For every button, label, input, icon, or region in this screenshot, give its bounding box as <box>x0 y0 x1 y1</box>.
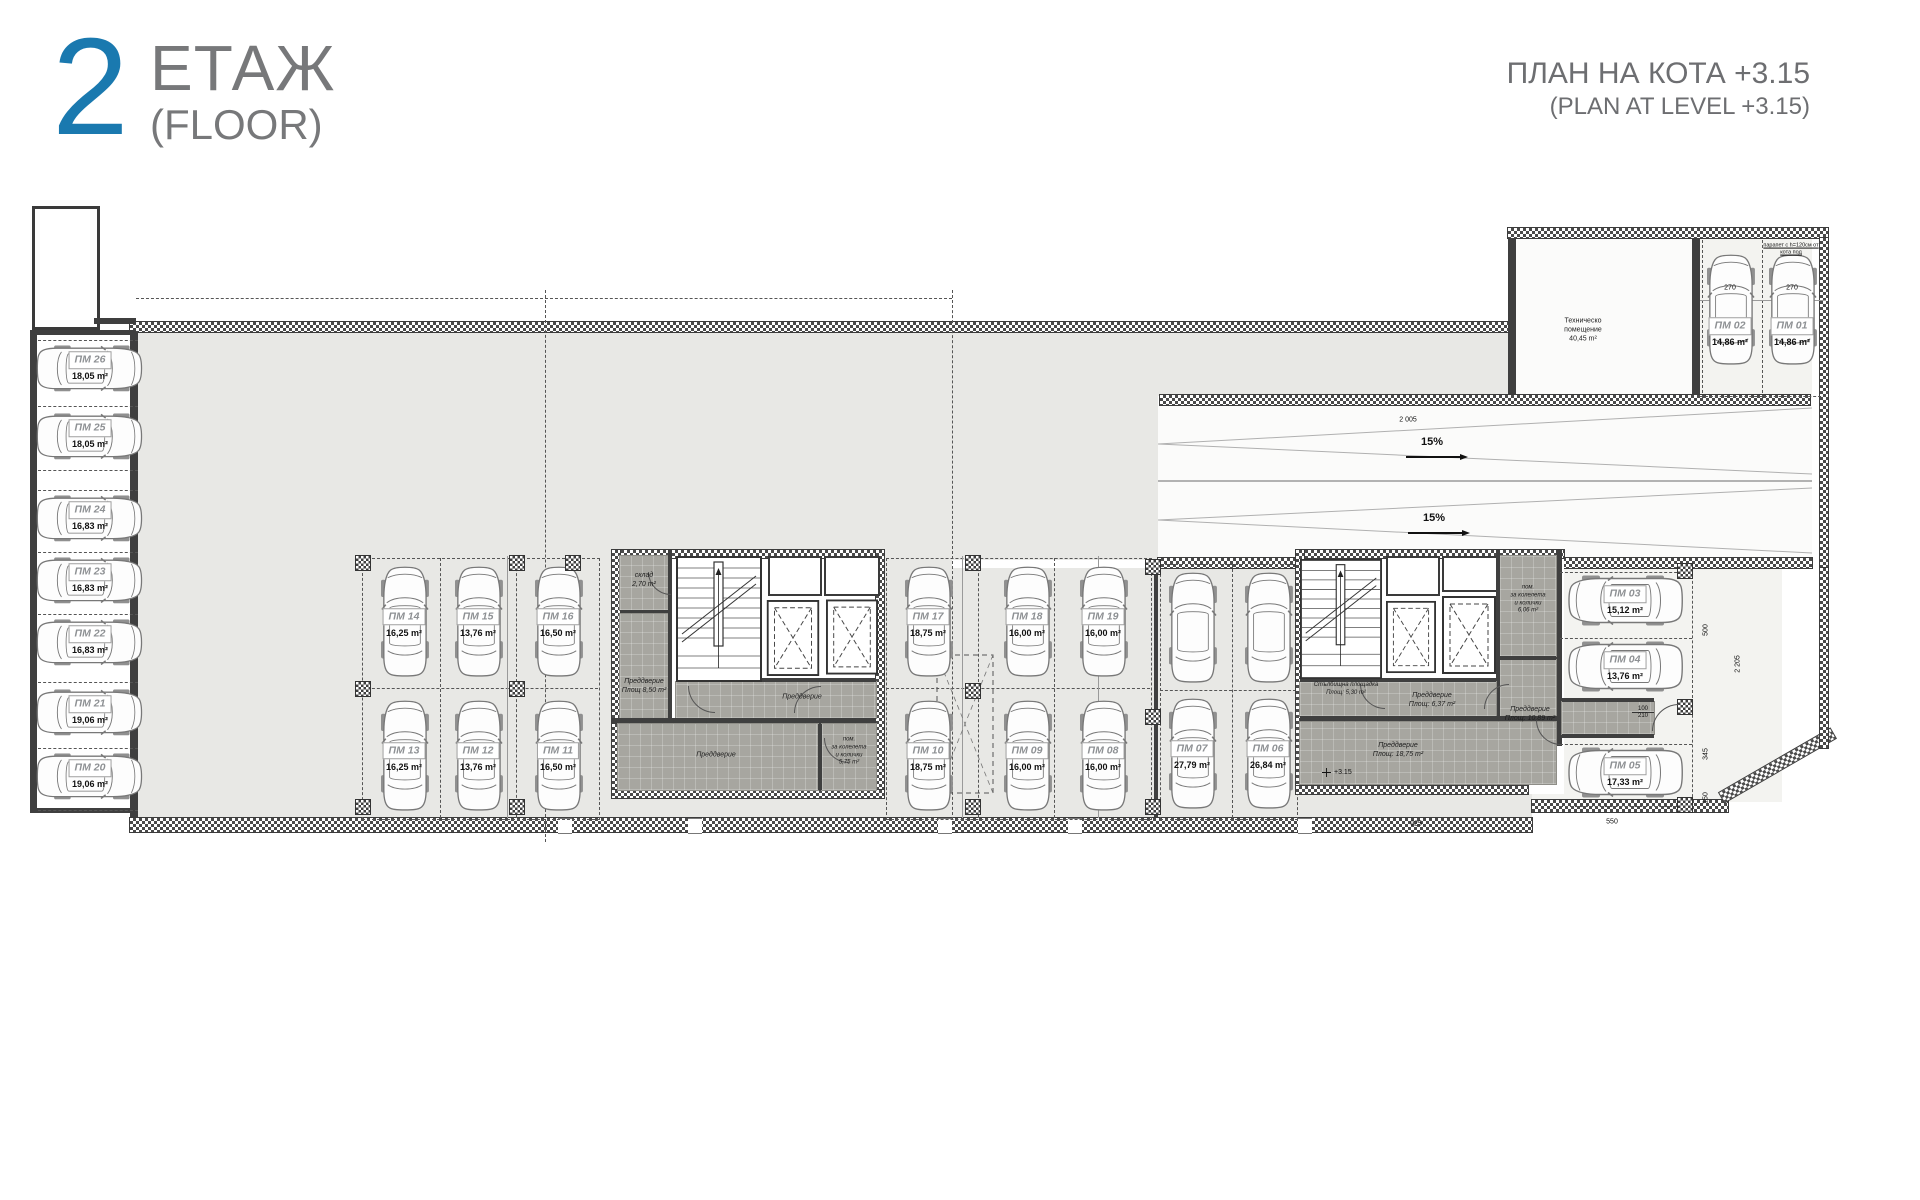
parking-spot: ПМ 2216,83 m² <box>42 618 138 664</box>
window-gap <box>1298 818 1312 834</box>
spot-id: ПМ 16 <box>537 608 580 626</box>
spot-area: 16,00 m² <box>1085 762 1121 773</box>
parking-spot: ПМ 1116,50 m² <box>534 696 582 814</box>
parking-spot: ПМ 1616,50 m² <box>534 562 582 680</box>
spot-id: ПМ 10 <box>907 742 950 760</box>
spot-area: 13,76 m² <box>460 628 496 639</box>
spot-area: 14,86 m² <box>1712 337 1748 348</box>
parking-spot: ПМ 2518,05 m² <box>42 412 138 458</box>
parking-spot: ПМ 1718,75 m² <box>904 562 952 680</box>
parking-spot: ПМ 0413,76 m² <box>1566 642 1684 692</box>
parking-spot: ПМ 2316,83 m² <box>42 556 138 602</box>
parking-spot: ПМ 0114,86 m² <box>1768 250 1816 368</box>
parking-spot: ПМ 0517,33 m² <box>1566 748 1684 798</box>
vestibule-strip-label: Преддверие <box>782 692 822 701</box>
spot-divider <box>886 688 1150 689</box>
column <box>966 684 980 698</box>
car-icon <box>1768 250 1816 368</box>
window-gap <box>688 818 702 834</box>
wall-top-main <box>130 322 1508 332</box>
ramp-dim: 2 005 <box>1399 417 1417 424</box>
spot-area: 14,86 m² <box>1774 337 1810 348</box>
door-dimension: 100 210 <box>1632 706 1654 719</box>
spot-id: ПМ 26 <box>69 351 112 369</box>
bay-dim: 270 <box>1786 285 1798 292</box>
ramp-slope-upper: 15% <box>1421 436 1443 448</box>
spot-id: ПМ 14 <box>383 608 426 626</box>
spot-divider <box>1560 638 1692 639</box>
spot-area: 13,76 m² <box>460 762 496 773</box>
level-marker: +3.15 <box>1322 768 1352 777</box>
spot-id: ПМ 06 <box>1247 740 1290 758</box>
parking-spot: ПМ 0626,84 m² <box>1244 694 1292 812</box>
parking-spot: ПМ 1416,25 m² <box>380 562 428 680</box>
spot-area: 16,50 m² <box>540 762 576 773</box>
spot-area: 13,76 m² <box>1607 671 1643 682</box>
left-core-wall-bottom <box>612 790 884 798</box>
parking-spot: ПМ 1018,75 m² <box>904 696 952 814</box>
spot-id: ПМ 11 <box>537 742 579 760</box>
parking-spot: ПМ 2618,05 m² <box>42 344 138 390</box>
spot-id: ПМ 05 <box>1604 757 1647 775</box>
bike-room-left-label: пом. за колелета и колички 5,75 m² <box>831 736 866 767</box>
right-core-wall-bottom <box>1296 786 1528 794</box>
wall-core-internal <box>818 724 822 790</box>
tech-room-label: Техническо помещение 40,45 m² <box>1564 316 1602 343</box>
column <box>1146 710 1160 724</box>
dim-core-bottom: 925 <box>1410 821 1422 828</box>
spot-area: 16,00 m² <box>1009 762 1045 773</box>
wall-stub-top-left <box>30 330 136 335</box>
spot-id: ПМ 17 <box>907 608 950 626</box>
wall-top-tech <box>1508 228 1828 238</box>
wall-corridor-top <box>1562 698 1654 702</box>
spot-area: 18,05 m² <box>72 371 108 382</box>
parking-spot: ПМ 0315,12 m² <box>1566 576 1684 626</box>
floor-plan: 15% 15% 2 005 <box>0 0 1920 1200</box>
window-gap <box>938 818 952 834</box>
garage-floor-ramp-approach <box>952 396 1158 560</box>
spot-area: 15,12 m² <box>1607 605 1643 616</box>
spot-area: 16,83 m² <box>72 521 108 532</box>
parking-spot: ПМ 2119,06 m² <box>42 688 138 734</box>
column <box>1678 700 1692 714</box>
spot-divider <box>1700 396 1826 397</box>
parking-spot <box>1244 568 1292 686</box>
spot-divider <box>1560 744 1692 745</box>
level-cross-icon <box>1322 768 1331 777</box>
vestibule-850-label: Преддверие Площ 8,50 m² <box>622 677 667 695</box>
parking-spot: ПМ 1816,00 m² <box>1003 562 1051 680</box>
parking-spot: ПМ 2416,83 m² <box>42 494 138 540</box>
dim-wing-right: 500 <box>1703 624 1710 636</box>
shaft-room <box>824 556 880 596</box>
spot-divider <box>1560 806 1692 807</box>
spot-area: 16,83 m² <box>72 645 108 656</box>
wall-right-outer-upper <box>1820 238 1828 568</box>
spot-divider <box>38 614 138 615</box>
car-icon <box>1706 250 1754 368</box>
spot-divider <box>362 688 598 689</box>
spot-area: 16,25 m² <box>386 762 422 773</box>
spot-area: 26,84 m² <box>1250 760 1286 771</box>
parking-spot: ПМ 0916,00 m² <box>1003 696 1051 814</box>
spot-divider <box>38 490 138 491</box>
column <box>356 682 370 696</box>
parapet-note: парапет с h=120см от кота под <box>1753 243 1829 258</box>
parking-spot <box>1168 568 1216 686</box>
spot-id: ПМ 01 <box>1771 317 1814 335</box>
vestibule-637-label: Преддверие Площ: 6,37 m² <box>1409 691 1456 709</box>
wall-core-internal <box>1500 656 1556 660</box>
spot-divider <box>38 470 138 471</box>
stair-landing-label: Стълбищна площадка Площ: 5,30 m² <box>1314 682 1379 698</box>
bike-room-right-label: пом. за колелета и колички 6,06 m² <box>1510 584 1545 615</box>
column <box>510 682 524 696</box>
annex-connector-wall <box>94 318 136 324</box>
spot-area: 18,75 m² <box>910 762 946 773</box>
grid-line <box>507 556 508 818</box>
stairs-right <box>1300 558 1382 680</box>
spot-area: 18,05 m² <box>72 439 108 450</box>
column <box>966 800 980 814</box>
wall-storage-bottom <box>620 610 668 613</box>
spot-area: 16,83 m² <box>72 583 108 594</box>
spot-id: ПМ 18 <box>1006 608 1049 626</box>
car-icon <box>1168 568 1216 686</box>
window-gap <box>558 818 572 834</box>
elevator <box>1442 594 1496 676</box>
stairs-left <box>676 556 762 682</box>
spot-area: 17,33 m² <box>1607 777 1643 788</box>
wall-tech-right <box>1692 238 1700 398</box>
annex-room <box>32 206 100 330</box>
overhang-dashed-line <box>136 298 952 299</box>
spot-divider <box>38 810 138 811</box>
spot-divider <box>38 748 138 749</box>
spot-id: ПМ 24 <box>69 501 112 519</box>
spot-id: ПМ 25 <box>69 419 112 437</box>
column <box>1146 560 1160 574</box>
spot-divider <box>38 406 138 407</box>
door-dim-height: 210 <box>1632 712 1654 719</box>
column <box>1678 798 1692 812</box>
parking-spot: ПМ 0727,79 m² <box>1168 694 1216 812</box>
spot-id: ПМ 04 <box>1604 651 1647 669</box>
column <box>566 556 580 570</box>
window-gap <box>1068 818 1082 834</box>
storage-label: склад 2,70 m² <box>632 571 656 589</box>
spot-area: 18,75 m² <box>910 628 946 639</box>
spot-divider <box>1560 572 1692 573</box>
spot-area: 19,06 m² <box>72 779 108 790</box>
column <box>356 800 370 814</box>
spot-area: 27,79 m² <box>1174 760 1210 771</box>
spot-divider <box>1160 690 1296 691</box>
dim-wing-bottom: 550 <box>1606 819 1618 826</box>
spot-id: ПМ 15 <box>457 608 500 626</box>
column <box>510 556 524 570</box>
ramp-arrow-upper-icon <box>1406 456 1460 458</box>
column <box>356 556 370 570</box>
vestibule-bottom-label: Преддверие <box>696 750 736 759</box>
ramp-lane-lines <box>1158 398 1812 560</box>
ramp-slope-lower: 15% <box>1423 512 1445 524</box>
elevator <box>766 600 820 676</box>
parking-spot: ПМ 0816,00 m² <box>1079 696 1127 814</box>
bay-dim: 270 <box>1724 285 1736 292</box>
parking-spot: ПМ 0214,86 m² <box>1706 250 1754 368</box>
parking-spot: ПМ 1513,76 m² <box>454 562 502 680</box>
dim-wing-right: 2 205 <box>1735 655 1742 673</box>
wall-tech-left <box>1508 238 1516 398</box>
spot-id: ПМ 03 <box>1604 585 1647 603</box>
spot-area: 16,50 m² <box>540 628 576 639</box>
column <box>1678 564 1692 578</box>
spot-id: ПМ 20 <box>69 759 112 777</box>
spot-id: ПМ 22 <box>69 625 112 643</box>
spot-id: ПМ 21 <box>69 695 112 713</box>
garage-floor-top-aisle <box>952 332 1508 396</box>
spot-divider <box>1692 566 1693 812</box>
spot-divider <box>1762 240 1763 398</box>
ramp-arrow-lower-icon <box>1408 532 1462 534</box>
column <box>510 800 524 814</box>
spot-id: ПМ 13 <box>383 742 426 760</box>
elevator <box>826 598 878 676</box>
shaft-room <box>1386 556 1440 596</box>
shaft-room <box>768 556 822 596</box>
spot-divider <box>38 682 138 683</box>
spot-divider <box>1232 564 1233 818</box>
column <box>1146 800 1160 814</box>
shaft-room <box>1442 556 1500 592</box>
dim-wing-right: 345 <box>1703 748 1710 760</box>
column <box>966 556 980 570</box>
spot-id: ПМ 07 <box>1171 740 1214 758</box>
spot-divider <box>38 340 138 341</box>
spot-id: ПМ 09 <box>1006 742 1049 760</box>
spot-divider <box>38 552 138 553</box>
spot-area: 16,00 m² <box>1009 628 1045 639</box>
car-icon <box>1244 568 1292 686</box>
wall-corridor-bottom <box>1562 734 1654 738</box>
vestibule-1089-label: Преддверие Площ: 10,89 m² <box>1505 705 1555 723</box>
parking-spot: ПМ 1916,00 m² <box>1079 562 1127 680</box>
elevator <box>1386 598 1436 676</box>
parking-spot: ПМ 1316,25 m² <box>380 696 428 814</box>
wall-bottom-main <box>130 818 1532 832</box>
dim-wing-right: 150 <box>1703 792 1710 804</box>
parking-spot: ПМ 1213,76 m² <box>454 696 502 814</box>
parking-spot: ПМ 2019,06 m² <box>42 752 138 798</box>
spot-id: ПМ 23 <box>69 563 112 581</box>
vestibule-1875-label: Преддверие Площ: 18,75 m² <box>1373 741 1423 759</box>
spot-id: ПМ 08 <box>1082 742 1125 760</box>
spot-area: 19,06 m² <box>72 715 108 726</box>
spot-area: 16,00 m² <box>1085 628 1121 639</box>
wall-right-outer-lower <box>1820 568 1828 748</box>
spot-divider <box>1702 240 1703 398</box>
spot-id: ПМ 02 <box>1709 317 1752 335</box>
spot-id: ПМ 12 <box>457 742 500 760</box>
spot-area: 16,25 m² <box>386 628 422 639</box>
level-value: +3.15 <box>1334 769 1352 776</box>
tech-room-floor <box>1516 238 1692 398</box>
spot-id: ПМ 19 <box>1082 608 1125 626</box>
wall-tandem-left <box>1154 562 1158 818</box>
